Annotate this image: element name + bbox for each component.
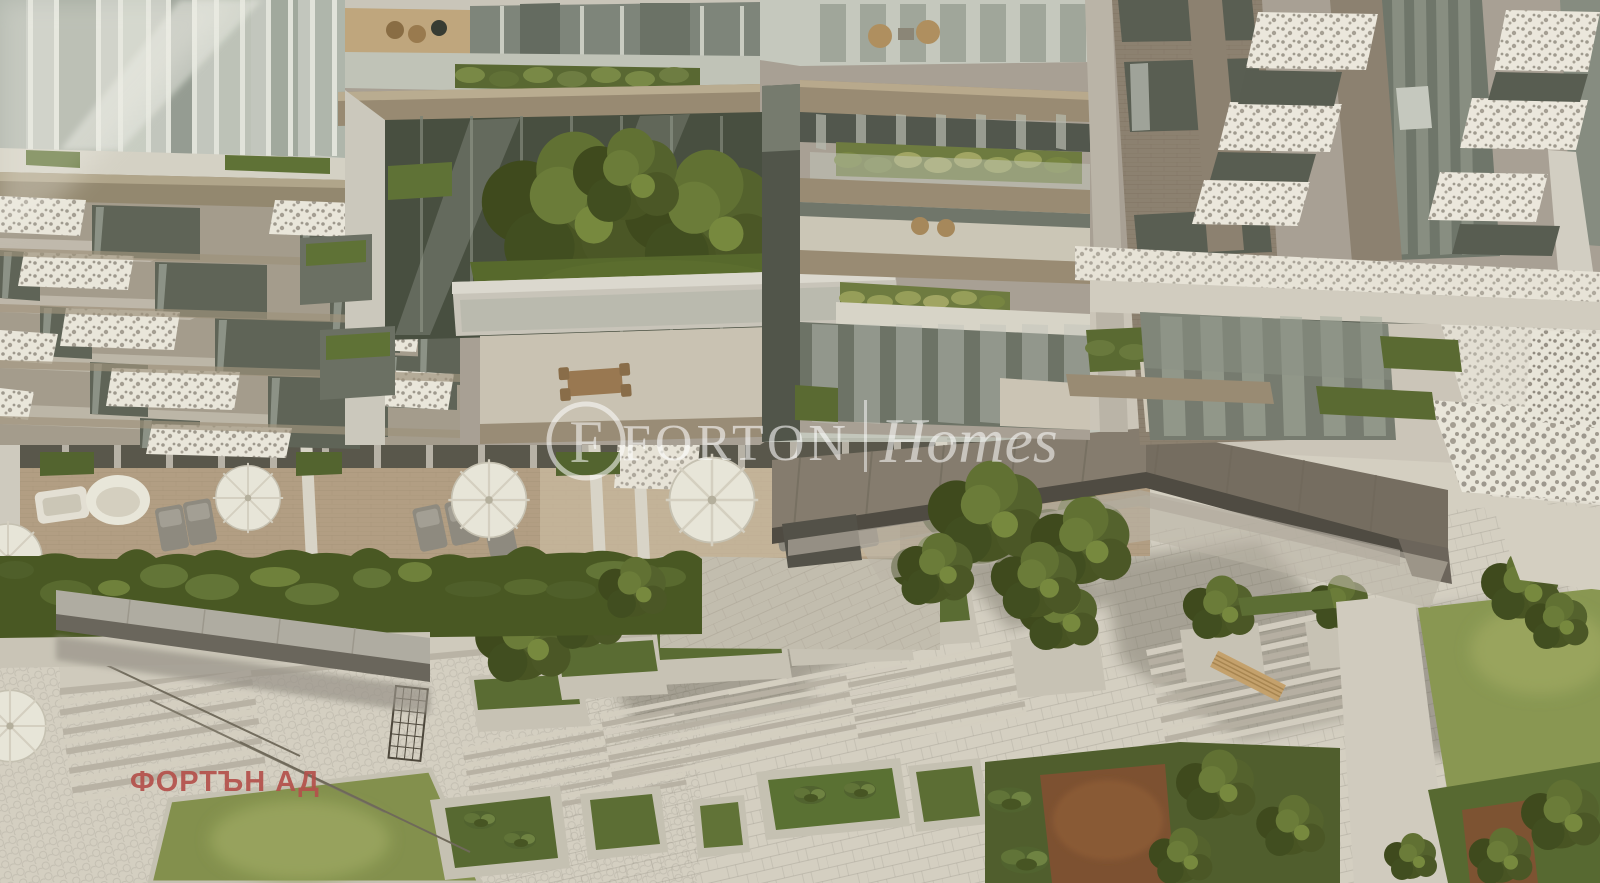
svg-text:FORTON: FORTON [622, 415, 850, 472]
svg-text:Homes: Homes [879, 405, 1058, 476]
svg-text:F: F [569, 409, 602, 475]
svg-text:ФОРТЪН АД: ФОРТЪН АД [130, 766, 320, 798]
